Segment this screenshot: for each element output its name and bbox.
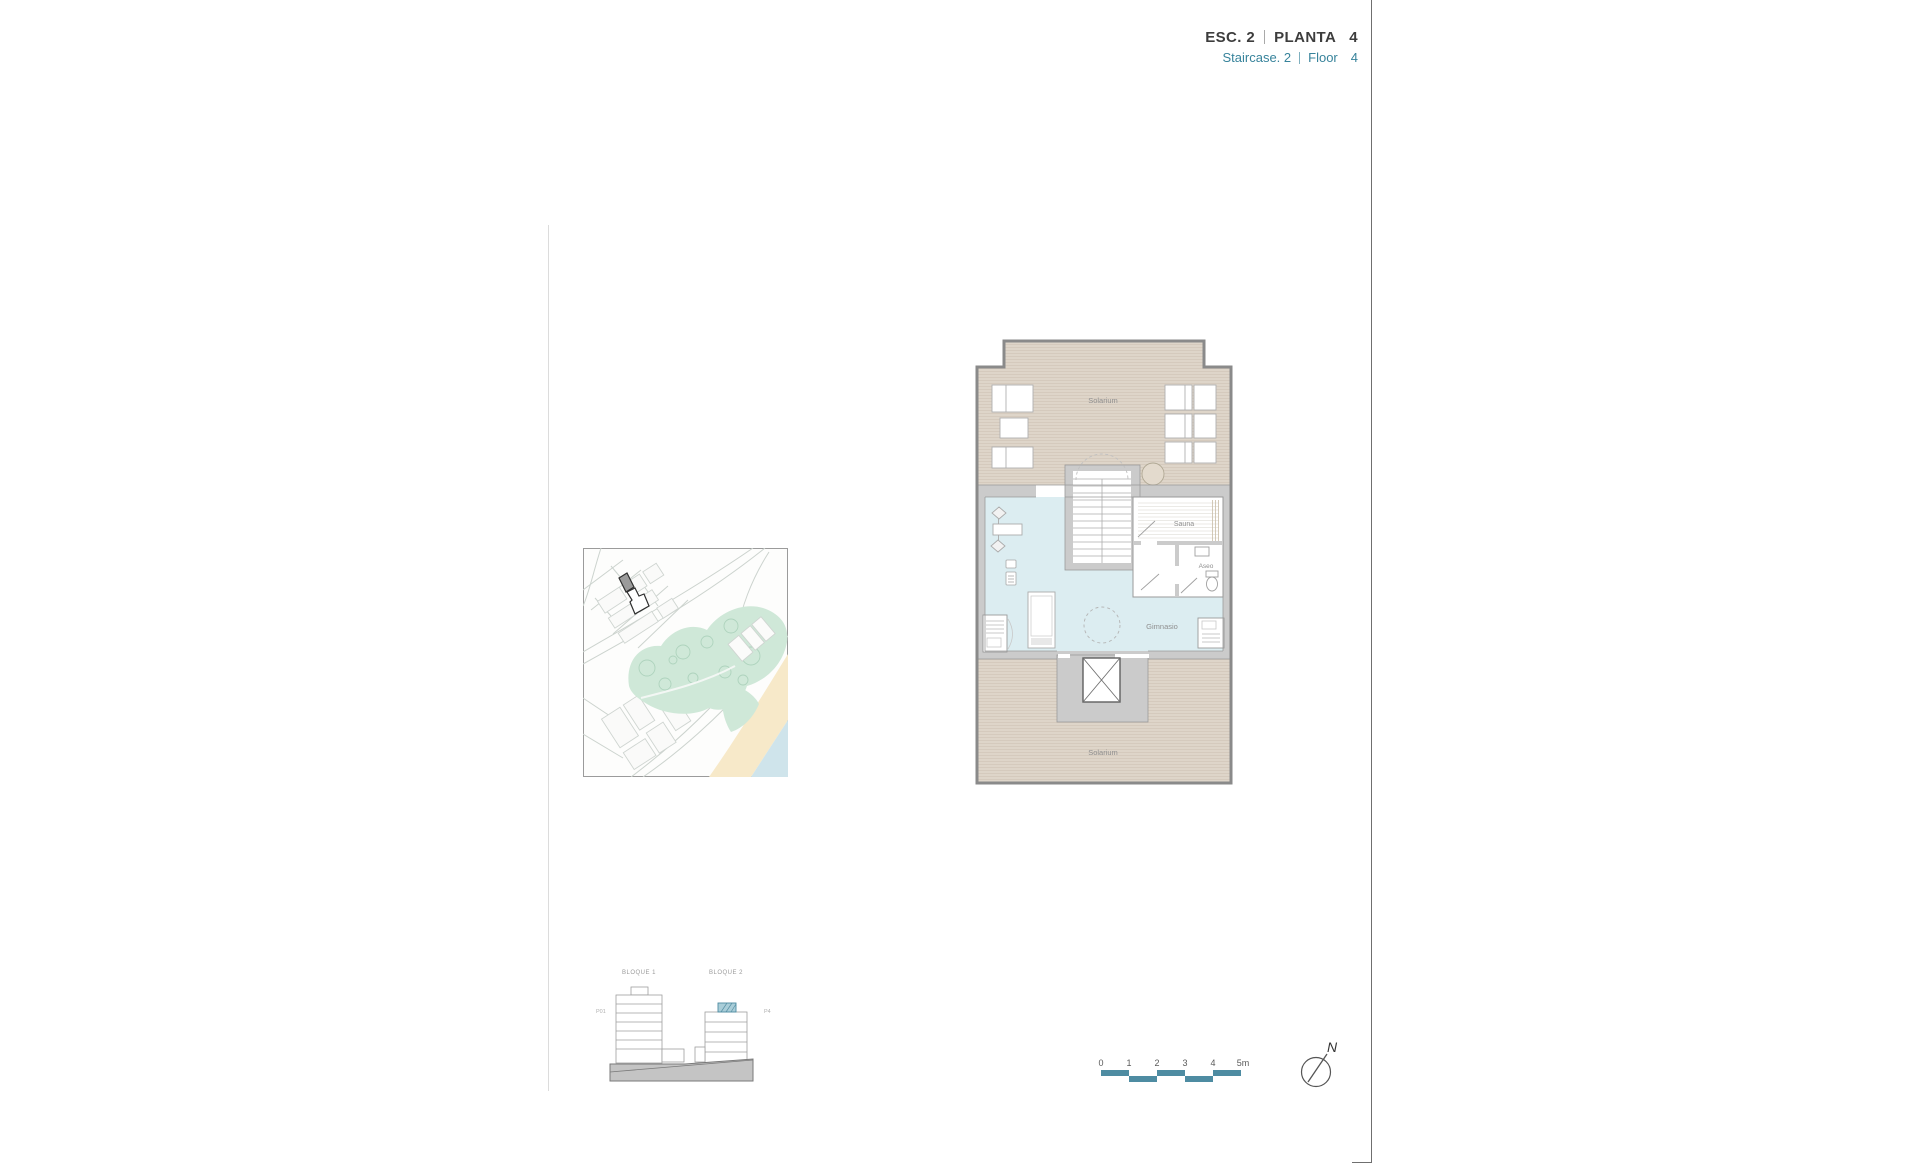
planta-label: PLANTA xyxy=(1274,29,1336,46)
page-fold-line xyxy=(548,225,549,1091)
round-table xyxy=(1142,463,1164,485)
scale-tick-0: 0 xyxy=(1098,1058,1103,1068)
scale-tick-3: 3 xyxy=(1182,1058,1187,1068)
scale-segments xyxy=(1101,1070,1241,1082)
title-divider xyxy=(1264,30,1265,44)
compass-circle xyxy=(1302,1058,1331,1087)
room-label-solarium-upper: Solarium xyxy=(1088,396,1118,405)
level-label-left: P01 xyxy=(596,1009,606,1015)
planta-value: 4 xyxy=(1349,29,1358,46)
block2-label: BLOQUE 2 xyxy=(709,970,743,976)
staircase xyxy=(1065,454,1140,570)
north-arrow: N xyxy=(1294,1034,1354,1096)
scale-bar: 0 1 2 3 4 5m xyxy=(1094,1050,1254,1086)
title-divider-en xyxy=(1299,52,1300,64)
north-label: N xyxy=(1327,1039,1338,1055)
door-gap-solarium-gym xyxy=(1036,485,1065,497)
room-label-gimnasio: Gimnasio xyxy=(1146,622,1178,631)
sheet-frame-corner xyxy=(1352,1162,1372,1163)
right-alcove-unit xyxy=(1198,618,1224,648)
block1-label: BLOQUE 1 xyxy=(622,970,656,976)
block2-outline xyxy=(695,1012,747,1063)
floor-value: 4 xyxy=(1351,50,1358,65)
scale-tick-4: 4 xyxy=(1210,1058,1215,1068)
title-en: Staircase. 2Floor4 xyxy=(1205,51,1358,64)
esc-label: ESC. 2 xyxy=(1205,29,1255,46)
room-label-sauna: Sauna xyxy=(1174,521,1194,528)
title-block: ESC. 2PLANTA4 Staircase. 2Floor4 xyxy=(1205,30,1358,64)
room-label-solarium-lower: Solarium xyxy=(1088,748,1118,757)
title-es: ESC. 2PLANTA4 xyxy=(1205,30,1358,45)
scale-tick-5m: 5m xyxy=(1237,1058,1250,1068)
staircase-label: Staircase. 2 xyxy=(1222,50,1291,65)
scale-tick-2: 2 xyxy=(1154,1058,1159,1068)
site-location-map xyxy=(583,548,788,777)
level-label-right: P4 xyxy=(764,1009,771,1015)
floor-plan: Solarium Sauna Aseo Gimnasio Solarium xyxy=(975,338,1233,786)
building-section: BLOQUE 1 BLOQUE 2 P01 P4 xyxy=(590,960,780,1090)
exercise-bike xyxy=(1006,560,1016,585)
scale-tick-labels: 0 1 2 3 4 5m xyxy=(1098,1058,1249,1068)
highlighted-floor-marker xyxy=(718,1003,736,1012)
treadmill xyxy=(1028,592,1055,648)
scale-tick-1: 1 xyxy=(1126,1058,1131,1068)
block1-outline xyxy=(616,987,684,1063)
plan-sheet: ESC. 2PLANTA4 Staircase. 2Floor4 xyxy=(0,0,1920,1166)
floor-label: Floor xyxy=(1308,50,1338,65)
elevator-core xyxy=(1057,654,1149,722)
sauna-aseo-block xyxy=(1133,497,1223,597)
sheet-frame-line xyxy=(1371,0,1372,1163)
room-label-aseo: Aseo xyxy=(1199,563,1214,570)
